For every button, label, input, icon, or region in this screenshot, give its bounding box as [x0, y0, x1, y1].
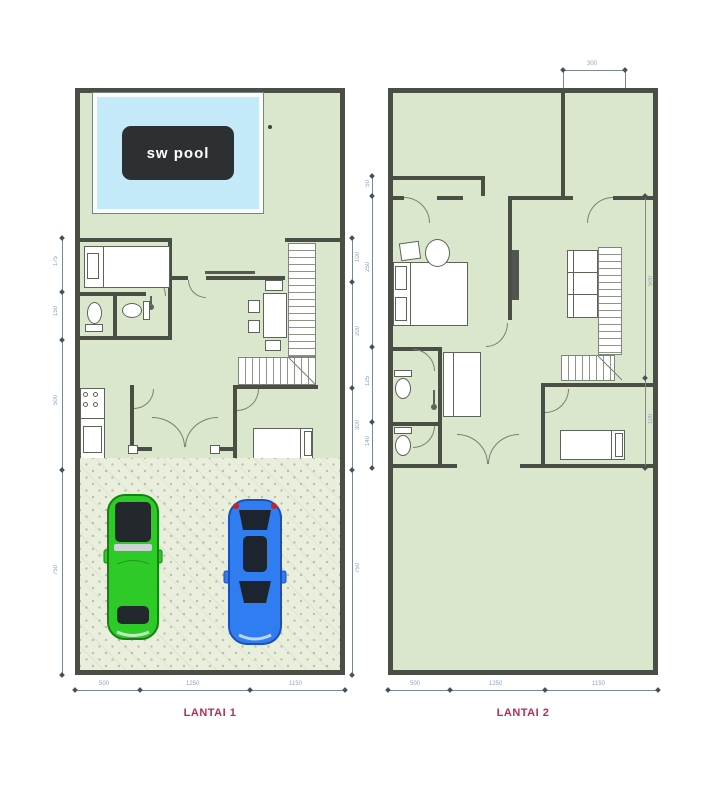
- dimension-tick: [560, 67, 566, 73]
- wall: [438, 422, 442, 464]
- floorplan-canvas: sw pool: [0, 0, 704, 804]
- kitchen-sink: [83, 426, 102, 453]
- tv-console: [205, 271, 255, 274]
- dimension-line: [75, 690, 345, 691]
- door-arc: [486, 323, 508, 347]
- dimension-tick: [59, 235, 65, 241]
- bed-pillow: [395, 297, 407, 321]
- dimension-tick: [247, 687, 253, 693]
- dimension-label: 1150: [289, 681, 302, 687]
- dimension-tick: [369, 419, 375, 425]
- dimension-label: 750: [355, 563, 361, 573]
- dimension-label: 125: [365, 376, 371, 386]
- dimension-label: 300: [587, 61, 597, 67]
- door-arc: [545, 389, 569, 413]
- stairs: [288, 243, 316, 357]
- wall: [520, 464, 658, 468]
- wall: [285, 238, 340, 242]
- double-door-arc: [488, 434, 519, 464]
- dimension-tick: [622, 67, 628, 73]
- chair: [265, 340, 281, 351]
- pool-label-box: sw pool: [122, 126, 234, 180]
- toilet: [87, 302, 102, 324]
- wall: [481, 176, 485, 196]
- shower-icon: [433, 390, 435, 404]
- dimension-label: 100: [648, 414, 654, 424]
- stairs: [598, 247, 622, 355]
- bed-pillow: [304, 431, 312, 456]
- door-arc: [413, 349, 435, 371]
- dimension-tick: [542, 687, 548, 693]
- dimension-line: [645, 196, 646, 468]
- stove-burner-icon: [83, 392, 88, 397]
- pool-label: sw pool: [147, 145, 210, 162]
- floor2-title: LANTAI 2: [483, 707, 563, 719]
- wall: [393, 176, 484, 180]
- door-arc: [413, 426, 435, 448]
- chair: [265, 280, 283, 291]
- floor2-plan: [388, 88, 658, 675]
- double-door-arc: [152, 417, 185, 447]
- dimension-label: 150: [53, 306, 59, 316]
- bed-line: [611, 431, 612, 459]
- door-arc: [188, 280, 206, 298]
- pool-deck-dot: [268, 125, 272, 129]
- dimension-line: [62, 238, 63, 675]
- stair-winder: [598, 355, 622, 381]
- dimension-tick: [349, 672, 355, 678]
- dimension-tick: [349, 467, 355, 473]
- floor1-title: LANTAI 1: [170, 707, 250, 719]
- toilet: [122, 303, 142, 318]
- door-arc: [404, 197, 430, 223]
- wall: [80, 238, 172, 242]
- dimension-label: 175: [53, 256, 59, 266]
- counter-line: [81, 418, 104, 419]
- bed-pillow: [87, 253, 99, 279]
- dimension-tick: [59, 467, 65, 473]
- dimension-label: 1250: [489, 681, 502, 687]
- dimension-label: 50: [365, 180, 371, 187]
- door-threshold: [210, 445, 220, 454]
- dimension-tick: [369, 465, 375, 471]
- dimension-label: 300: [355, 420, 361, 430]
- dimension-tick: [447, 687, 453, 693]
- carport: [80, 458, 340, 670]
- dimension-tick: [369, 173, 375, 179]
- vanity-mirror: [425, 239, 450, 267]
- shower-icon: [150, 296, 152, 304]
- toilet-tank: [143, 301, 150, 320]
- sofa-line: [568, 294, 597, 295]
- toilet-tank: [85, 324, 103, 332]
- dimension-label: 500: [410, 681, 420, 687]
- swimming-pool: sw pool: [93, 93, 263, 213]
- wall: [393, 464, 457, 468]
- dimension-tick: [59, 672, 65, 678]
- bed-line: [300, 429, 301, 458]
- wall: [561, 93, 565, 196]
- chair: [248, 300, 260, 313]
- stair-winder: [288, 357, 316, 385]
- bed-line: [103, 247, 104, 287]
- wall: [393, 196, 404, 200]
- dining-table: [263, 293, 287, 338]
- toilet-tank: [394, 427, 412, 434]
- dimension-line: [352, 238, 353, 675]
- car-blue: [223, 497, 287, 647]
- daybed-line: [453, 353, 454, 416]
- bed-pillow: [395, 266, 407, 290]
- toilet-tank: [394, 370, 412, 377]
- dimension-tick: [655, 687, 661, 693]
- wall: [510, 196, 573, 200]
- stove-burner-icon: [93, 402, 98, 407]
- double-door-arc: [185, 417, 218, 447]
- dimension-label: 100: [355, 252, 361, 262]
- daybed-sofa: [443, 352, 481, 417]
- dimension-label: 1150: [592, 681, 605, 687]
- dimension-label: 250: [365, 262, 371, 272]
- wall: [80, 336, 172, 340]
- dimension-tick: [137, 687, 143, 693]
- dimension-line: [388, 690, 658, 691]
- dimension-label: 140: [365, 436, 371, 446]
- dimension-tick: [349, 279, 355, 285]
- dimension-label: 1250: [186, 681, 199, 687]
- dimension-label: 750: [53, 565, 59, 575]
- floor1-plan: sw pool: [75, 88, 345, 675]
- door-arc: [587, 197, 613, 223]
- dimension-label: 500: [99, 681, 109, 687]
- stove-burner-icon: [93, 392, 98, 397]
- shower-head-icon: [431, 404, 437, 410]
- dimension-tick: [349, 385, 355, 391]
- double-door-arc: [457, 434, 488, 464]
- sofa-line: [568, 272, 597, 273]
- door-arc: [134, 389, 154, 409]
- wall: [613, 196, 658, 200]
- dimension-tick: [72, 687, 78, 693]
- wall: [437, 196, 463, 200]
- dimension-label: 500: [648, 276, 654, 286]
- tv-panel: [512, 250, 519, 300]
- bed-line: [410, 263, 411, 325]
- toilet: [395, 378, 411, 399]
- stove-burner-icon: [83, 402, 88, 407]
- bed-pillow: [615, 433, 623, 457]
- dimension-tick: [59, 289, 65, 295]
- dimension-line: [563, 70, 625, 71]
- dimension-tick: [342, 687, 348, 693]
- door-threshold: [128, 445, 138, 454]
- door-arc: [237, 389, 259, 411]
- wall: [438, 347, 442, 422]
- dimension-tick: [59, 337, 65, 343]
- car-green: [103, 492, 163, 642]
- wall: [218, 447, 233, 451]
- dimension-tick: [369, 193, 375, 199]
- wall: [113, 296, 117, 340]
- dimension-tick: [385, 687, 391, 693]
- sofa-line: [573, 251, 574, 317]
- toilet: [395, 435, 411, 456]
- dimension-label: 200: [355, 326, 361, 336]
- vanity-chair: [399, 241, 421, 262]
- dimension-tick: [369, 344, 375, 350]
- chair: [248, 320, 260, 333]
- wall: [545, 383, 658, 387]
- dimension-label: 500: [53, 395, 59, 405]
- sofa: [567, 250, 598, 318]
- dimension-tick: [349, 235, 355, 241]
